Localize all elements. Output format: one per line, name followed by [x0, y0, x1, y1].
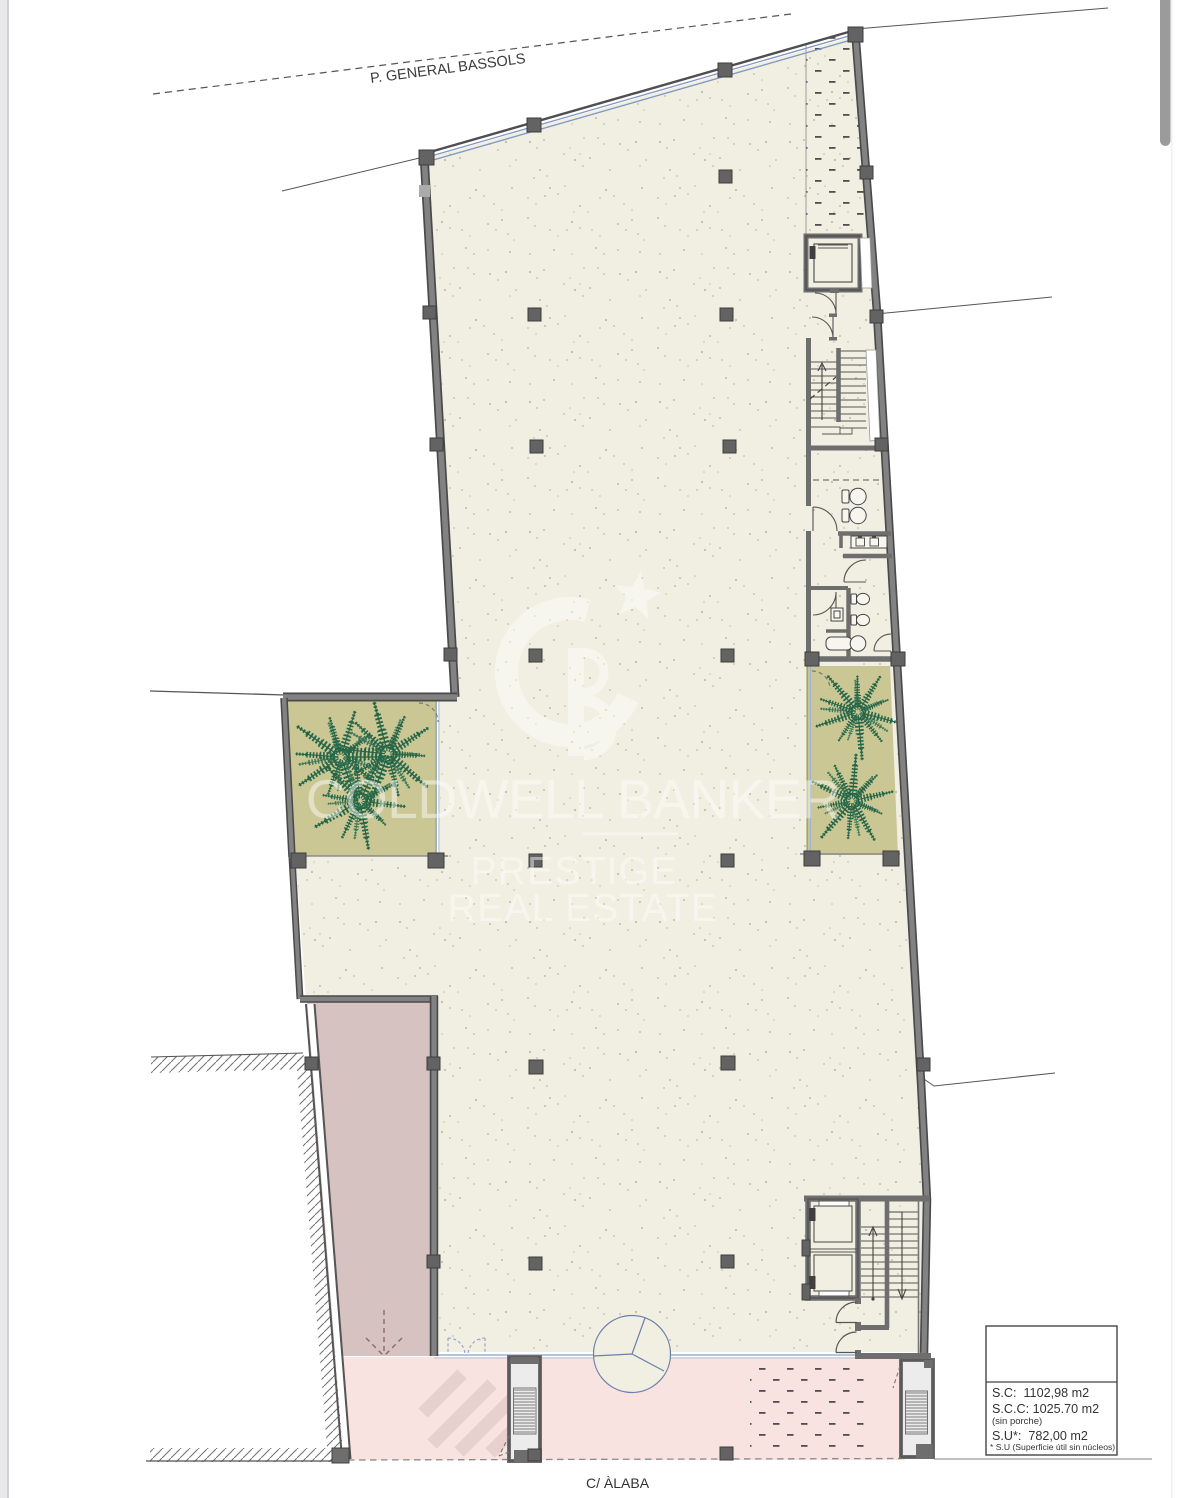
svg-text:S.C.C: 1025.70 m2: S.C.C: 1025.70 m2 — [992, 1402, 1099, 1416]
svg-text:S.U*: 782,00 m2: S.U*: 782,00 m2 — [992, 1429, 1088, 1443]
svg-text:S.C: 1102,98 m2: S.C: 1102,98 m2 — [992, 1386, 1089, 1400]
svg-text:COLDWELL BANKER: COLDWELL BANKER — [306, 768, 841, 830]
svg-text:(sin porche): (sin porche) — [992, 1416, 1042, 1427]
svg-text:* S.U (Superficie útil sin núc: * S.U (Superficie útil sin núcleos) — [990, 1442, 1115, 1452]
svg-text:REAL ESTATE: REAL ESTATE — [448, 887, 718, 930]
svg-text:C/ ÀLABA: C/ ÀLABA — [586, 1475, 650, 1491]
